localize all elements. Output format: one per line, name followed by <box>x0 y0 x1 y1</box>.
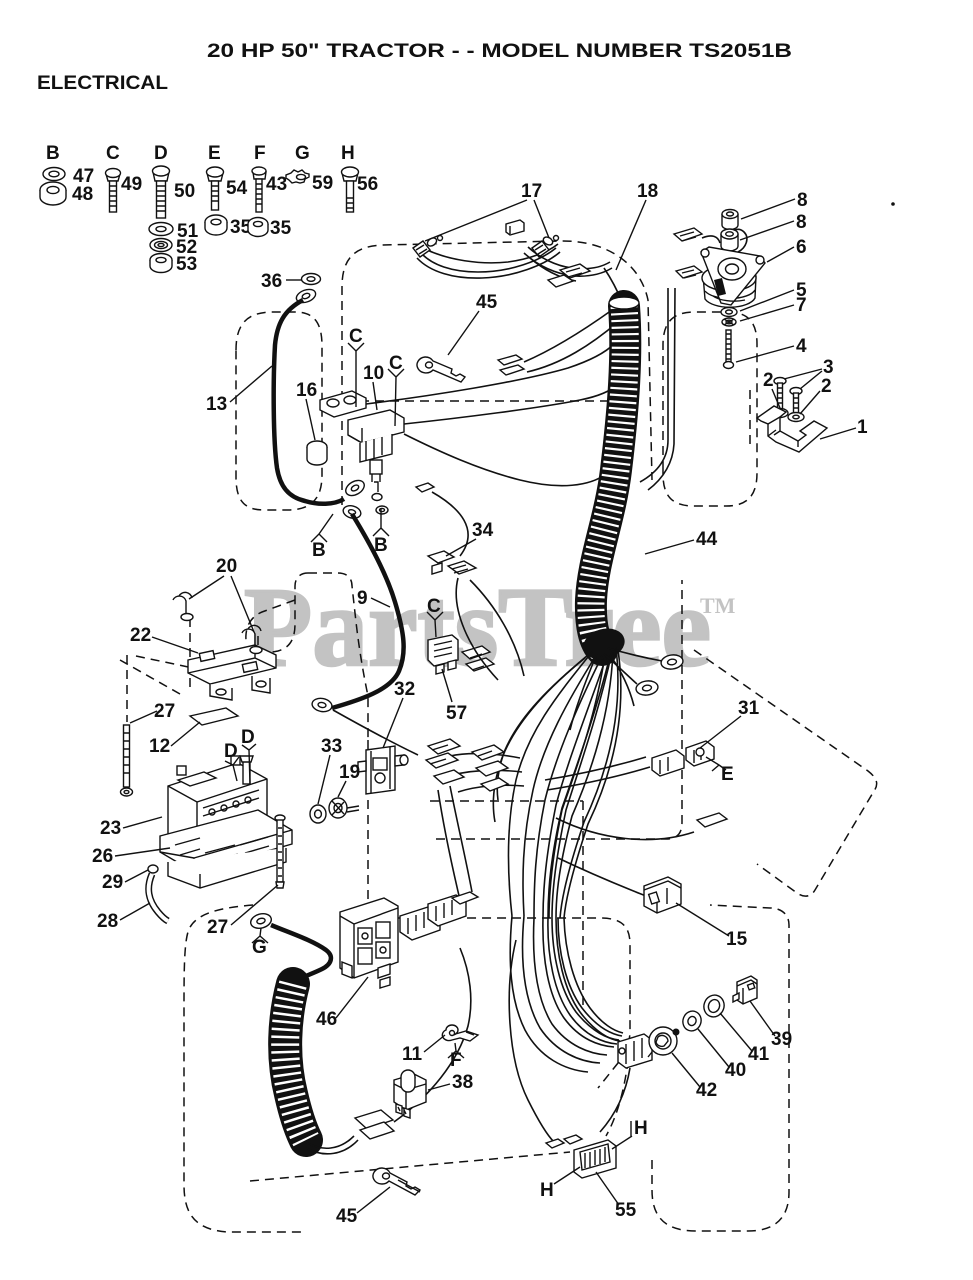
svg-text:3: 3 <box>823 357 834 378</box>
svg-text:41: 41 <box>748 1044 770 1065</box>
svg-text:F: F <box>450 1050 462 1071</box>
svg-text:B: B <box>312 540 326 561</box>
svg-text:42: 42 <box>696 1080 717 1101</box>
svg-text:11: 11 <box>402 1044 423 1065</box>
svg-text:18: 18 <box>637 181 658 202</box>
svg-text:49: 49 <box>121 174 142 195</box>
svg-text:50: 50 <box>174 181 195 202</box>
svg-text:39: 39 <box>771 1029 792 1050</box>
svg-text:46: 46 <box>316 1009 337 1030</box>
svg-text:32: 32 <box>394 679 415 700</box>
svg-text:B: B <box>374 535 388 556</box>
svg-text:34: 34 <box>472 520 494 541</box>
svg-text:44: 44 <box>696 529 718 550</box>
svg-text:45: 45 <box>336 1206 358 1227</box>
svg-text:4: 4 <box>796 336 807 357</box>
svg-text:40: 40 <box>725 1060 746 1081</box>
svg-text:TM: TM <box>700 593 736 618</box>
svg-text:38: 38 <box>452 1072 473 1093</box>
svg-text:29: 29 <box>102 872 123 893</box>
svg-text:E: E <box>208 143 221 164</box>
svg-text:8: 8 <box>797 190 808 211</box>
svg-text:H: H <box>341 143 355 164</box>
svg-text:C: C <box>349 326 363 347</box>
svg-text:56: 56 <box>357 174 378 195</box>
svg-text:D: D <box>154 143 168 164</box>
svg-text:33: 33 <box>321 736 342 757</box>
svg-text:19: 19 <box>339 762 360 783</box>
svg-text:20 HP 50" TRACTOR - - MODEL NU: 20 HP 50" TRACTOR - - MODEL NUMBER TS205… <box>207 41 792 62</box>
svg-text:36: 36 <box>261 271 282 292</box>
svg-text:D: D <box>241 727 255 748</box>
svg-text:45: 45 <box>476 292 498 313</box>
svg-text:13: 13 <box>206 394 227 415</box>
svg-text:31: 31 <box>738 698 760 719</box>
svg-text:43: 43 <box>266 174 287 195</box>
svg-text:22: 22 <box>130 625 151 646</box>
svg-text:53: 53 <box>176 254 197 275</box>
svg-text:23: 23 <box>100 818 121 839</box>
svg-text:28: 28 <box>97 911 118 932</box>
svg-text:16: 16 <box>296 380 317 401</box>
svg-text:57: 57 <box>446 703 467 724</box>
svg-text:7: 7 <box>796 295 807 316</box>
svg-text:H: H <box>634 1118 648 1139</box>
svg-text:C: C <box>106 143 120 164</box>
svg-text:C: C <box>389 353 403 374</box>
svg-text:12: 12 <box>149 736 170 757</box>
svg-text:27: 27 <box>207 917 228 938</box>
svg-text:20: 20 <box>216 556 237 577</box>
svg-text:10: 10 <box>363 363 384 384</box>
svg-text:54: 54 <box>226 178 248 199</box>
svg-text:9: 9 <box>357 588 368 609</box>
svg-text:B: B <box>46 143 60 164</box>
svg-text:26: 26 <box>92 846 113 867</box>
svg-text:F: F <box>254 143 266 164</box>
svg-text:6: 6 <box>796 237 807 258</box>
svg-text:2: 2 <box>821 376 832 397</box>
svg-text:35: 35 <box>270 218 292 239</box>
svg-text:H: H <box>540 1180 554 1201</box>
svg-text:48: 48 <box>72 184 93 205</box>
svg-text:17: 17 <box>521 181 542 202</box>
svg-text:15: 15 <box>726 929 748 950</box>
svg-text:D: D <box>224 741 238 762</box>
svg-text:G: G <box>295 143 310 164</box>
svg-text:ELECTRICAL: ELECTRICAL <box>37 73 168 94</box>
svg-text:PartsTree: PartsTree <box>244 565 711 690</box>
svg-text:8: 8 <box>796 212 807 233</box>
svg-text:59: 59 <box>312 173 333 194</box>
svg-text:2: 2 <box>763 370 774 391</box>
svg-text:1: 1 <box>857 417 868 438</box>
